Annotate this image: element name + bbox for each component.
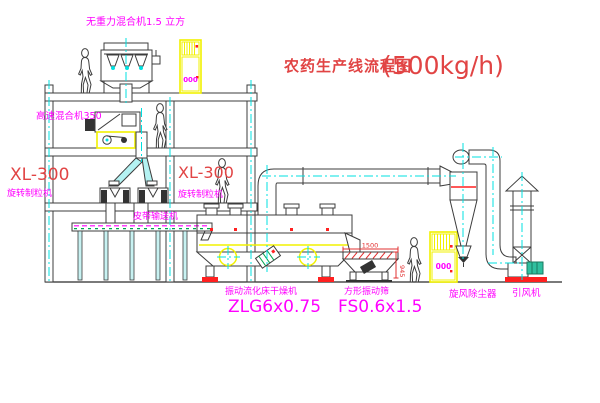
worker-floor2 [154,104,167,148]
label-xl300-right: XL-300 [178,163,234,182]
label-fan: 引风机 [512,287,541,299]
label-high-speed-mixer: 高速混合机350 [36,110,102,122]
control-cabinet-roof: 000 [180,40,201,93]
label-dryer-name: 振动流化床干燥机 [225,285,297,297]
dim-1500: 1500 [362,242,379,250]
label-granulator-left: 旋转制粒机 [7,187,52,199]
label-dryer-model: ZLG6x0.75 [228,297,321,317]
fluid-bed-dryer [197,204,360,282]
cabinet-ground-display: 000 [436,262,452,271]
control-cabinet-ground: 000 [430,232,457,282]
label-xl300-left: XL-300 [10,165,69,185]
label-granulator-right: 旋转制粒机 [178,188,223,200]
label-gravity-mixer: 无重力混合机1.5 立方 [86,15,185,28]
label-cyclone: 旋风除尘器 [449,288,497,300]
induced-draft-fan [505,262,547,282]
worker-ground [408,238,421,282]
worker-roof [79,49,92,93]
label-belt-conveyor: 皮带输送机 [133,210,178,222]
cyclone-separator [450,150,516,269]
granulator-left [100,181,130,203]
process-flow-drawing: 000 [0,0,600,403]
label-screen-model: FS0.6x1.5 [338,297,422,317]
dim-945: 945 [398,265,406,277]
granulator-right [138,181,168,203]
cad-drawing-canvas: 000 [0,0,600,403]
cabinet-roof-display: 000 [183,76,198,84]
drawing-title-capacity: (500kg/h) [382,51,504,80]
label-screen-name: 方形振动筛 [344,285,389,297]
belt-conveyor [72,223,212,280]
